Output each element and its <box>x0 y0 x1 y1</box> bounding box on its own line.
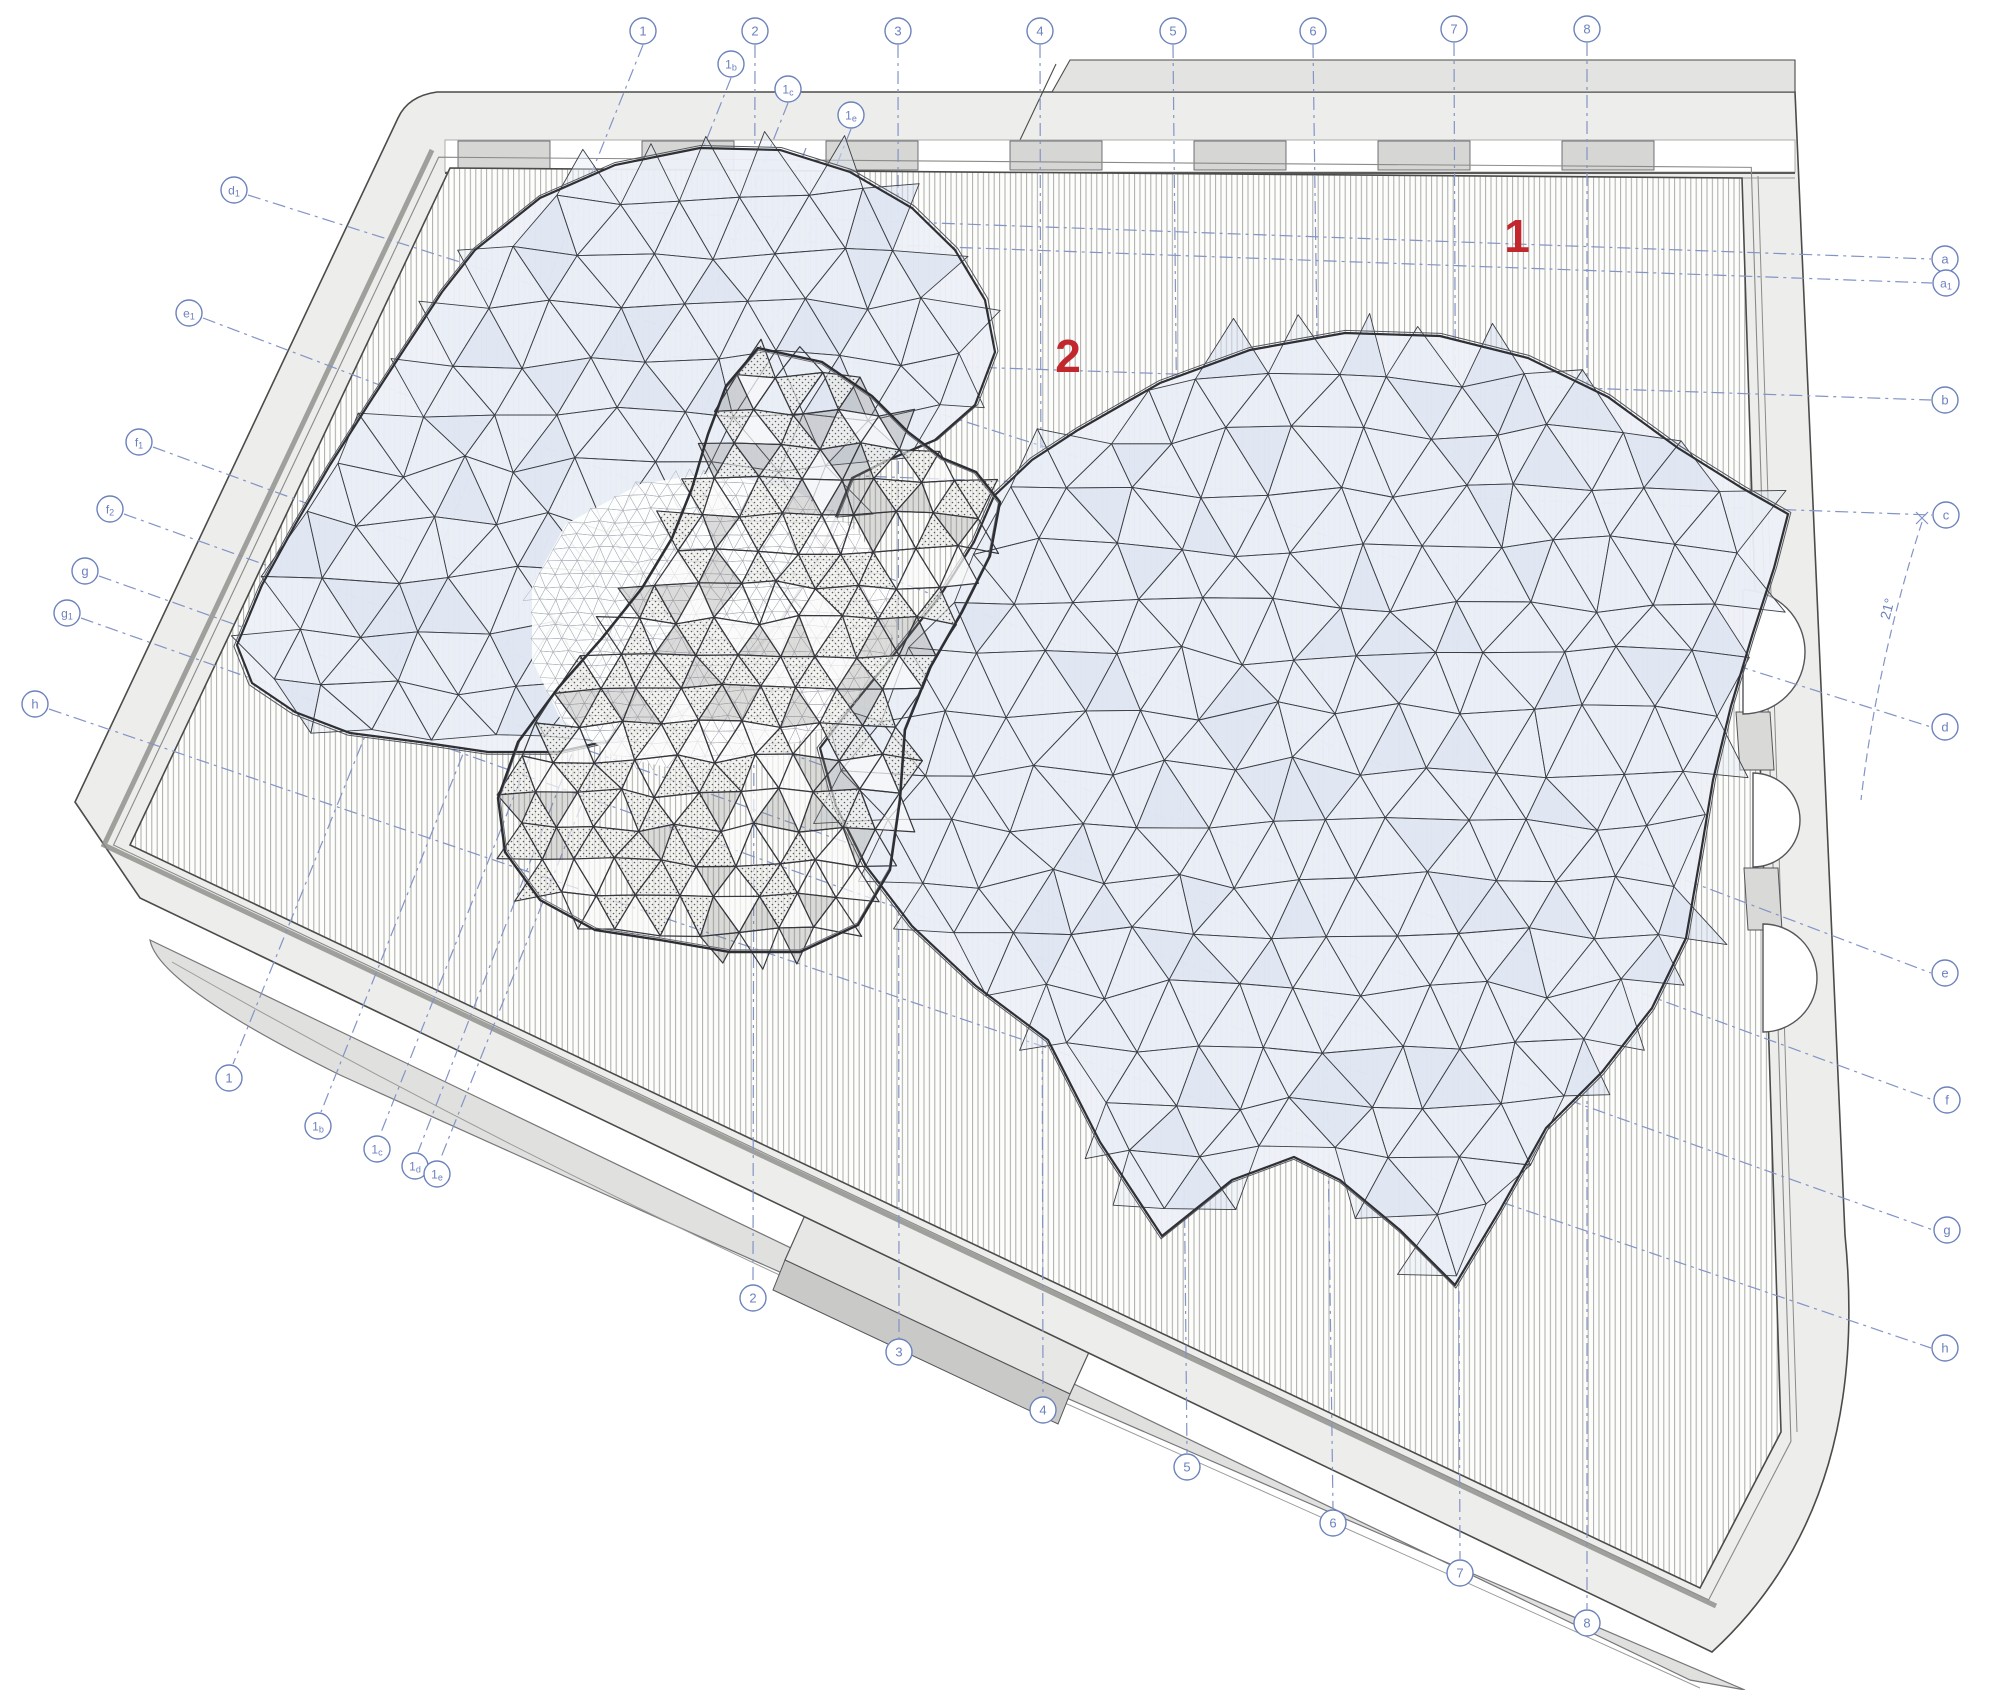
svg-text:5: 5 <box>1169 24 1176 39</box>
grid-label-right-a1: a1 <box>1933 270 1959 296</box>
skylight-panel <box>1194 141 1286 170</box>
grid-label-bottom-1b: 1b <box>305 1113 331 1139</box>
svg-text:2: 2 <box>751 24 758 39</box>
grid-label-bottom-3: 3 <box>886 1339 912 1365</box>
grid-label-left-g1: g1 <box>54 600 80 626</box>
grid-label-right-e: e <box>1932 960 1958 986</box>
svg-text:7: 7 <box>1450 22 1457 37</box>
grid-label-bottom-1c: 1c <box>364 1136 390 1162</box>
grid-label-bottom-8: 8 <box>1574 1610 1600 1636</box>
grid-label-top-1c: 1c <box>775 76 801 102</box>
svg-text:8: 8 <box>1583 1616 1590 1631</box>
grid-label-left-f1: f1 <box>126 429 152 455</box>
grid-label-top-7: 7 <box>1441 16 1467 42</box>
grid-label-bottom-4: 4 <box>1030 1397 1056 1423</box>
svg-text:f: f <box>1945 1093 1949 1108</box>
svg-text:b: b <box>1941 393 1948 408</box>
svg-text:5: 5 <box>1183 1460 1190 1475</box>
svg-text:7: 7 <box>1456 1566 1463 1581</box>
grid-label-right-d: d <box>1932 714 1958 740</box>
grid-label-left-f2: f2 <box>97 496 123 522</box>
skylight-panel <box>1378 141 1470 170</box>
svg-text:c: c <box>1943 508 1950 523</box>
grid-label-right-g: g <box>1934 1217 1960 1243</box>
svg-text:e: e <box>1941 966 1948 981</box>
skylight-panel <box>1010 141 1102 170</box>
grid-label-top-4: 4 <box>1027 18 1053 44</box>
grid-label-left-g: g <box>72 558 98 584</box>
grid-label-bottom-1e: 1e <box>424 1161 450 1187</box>
roof-plan-drawing: 21°1211b1c1e234567811b1c1d1e2345678d1e1f… <box>0 0 2000 1690</box>
grid-label-right-h: h <box>1932 1335 1958 1361</box>
grid-label-right-b: b <box>1932 387 1958 413</box>
svg-text:g: g <box>81 564 88 579</box>
svg-text:4: 4 <box>1036 24 1043 39</box>
grid-label-bottom-1: 1 <box>216 1065 242 1091</box>
grid-label-bottom-6: 6 <box>1320 1510 1346 1536</box>
svg-text:3: 3 <box>894 24 901 39</box>
grid-label-left-d1: d1 <box>221 177 247 203</box>
svg-text:2: 2 <box>749 1291 756 1306</box>
grid-label-top-3: 3 <box>885 18 911 44</box>
grid-label-left-h: h <box>22 691 48 717</box>
grid-label-left-e1: e1 <box>176 300 202 326</box>
raised-roof-tab <box>1052 60 1795 92</box>
svg-text:4: 4 <box>1039 1403 1046 1418</box>
grid-label-top-6: 6 <box>1300 18 1326 44</box>
svg-text:6: 6 <box>1309 24 1316 39</box>
grid-label-top-2: 2 <box>742 18 768 44</box>
svg-text:6: 6 <box>1329 1516 1336 1531</box>
grid-label-top-1e: 1e <box>838 102 864 128</box>
svg-text:1: 1 <box>225 1071 232 1086</box>
svg-text:g: g <box>1943 1223 1950 1238</box>
red-mark-1: 1 <box>1504 210 1530 262</box>
grid-label-bottom-2: 2 <box>740 1285 766 1311</box>
angle-annotation: 21° <box>1861 512 1928 800</box>
roof-plan-page: 21°1211b1c1e234567811b1c1d1e2345678d1e1f… <box>0 0 2000 1690</box>
skylight-panel <box>458 141 550 170</box>
grid-label-bottom-7: 7 <box>1447 1560 1473 1586</box>
grid-label-top-5: 5 <box>1160 18 1186 44</box>
svg-text:h: h <box>31 697 38 712</box>
grid-label-top-1b: 1b <box>718 51 744 77</box>
svg-text:h: h <box>1941 1341 1948 1356</box>
svg-text:d: d <box>1941 720 1948 735</box>
grid-label-right-f: f <box>1934 1087 1960 1113</box>
svg-text:1: 1 <box>639 24 646 39</box>
svg-text:8: 8 <box>1583 22 1590 37</box>
svg-text:a: a <box>1941 252 1949 267</box>
svg-text:3: 3 <box>895 1345 902 1360</box>
grid-label-top-1: 1 <box>630 18 656 44</box>
grid-label-bottom-5: 5 <box>1174 1454 1200 1480</box>
grid-label-right-c: c <box>1933 502 1959 528</box>
grid-label-right-a: a <box>1932 246 1958 272</box>
grid-label-top-8: 8 <box>1574 16 1600 42</box>
red-mark-2: 2 <box>1055 330 1081 382</box>
